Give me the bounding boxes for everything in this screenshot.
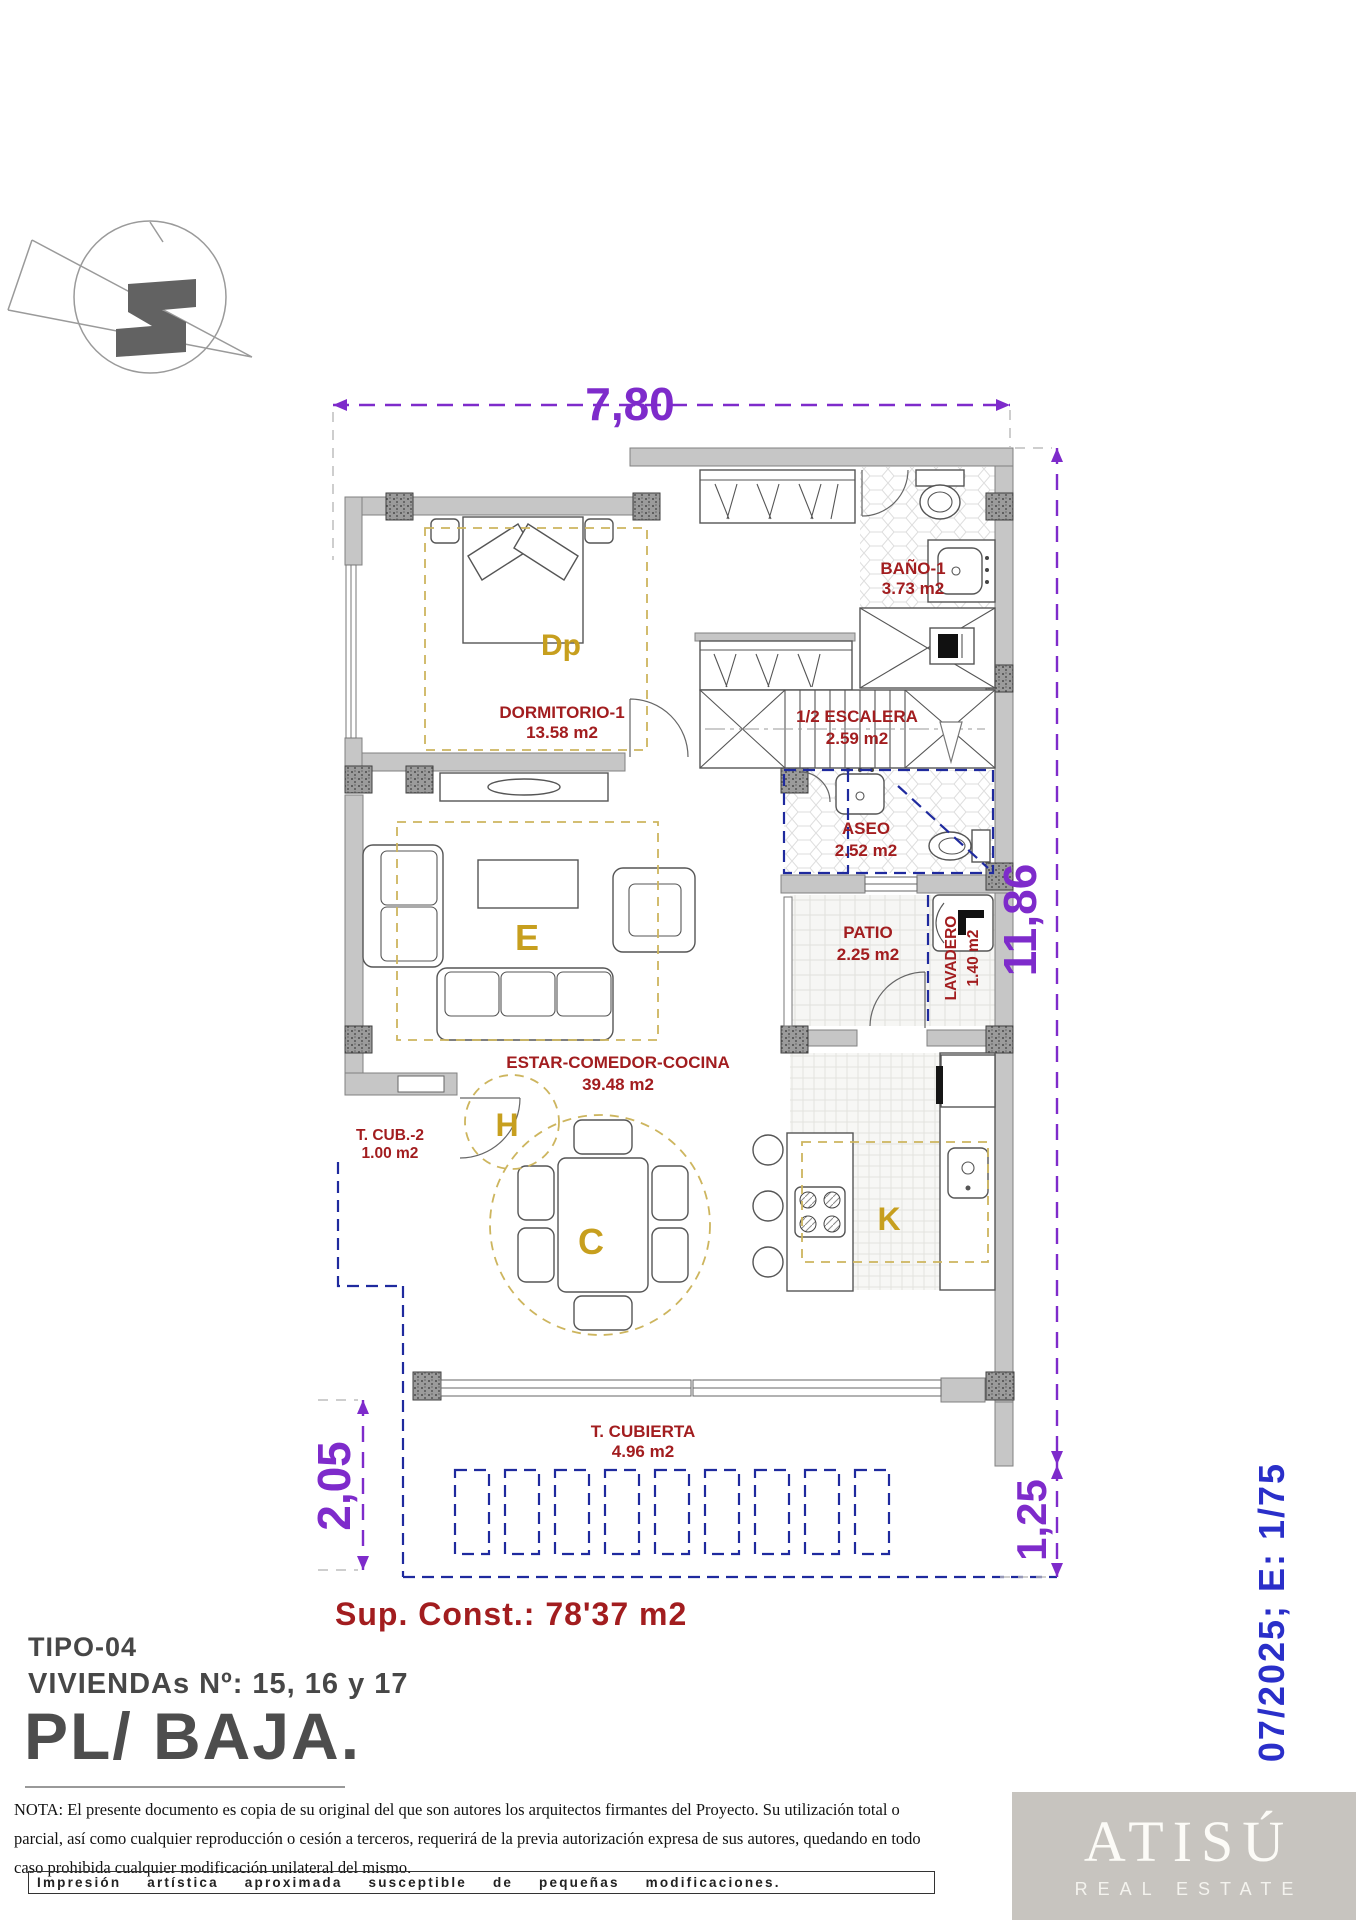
chair-icon <box>574 1120 632 1154</box>
nightstand-icon <box>431 519 459 543</box>
dresser-icon <box>440 773 608 801</box>
dim-right-height: 11,86 <box>994 864 1046 977</box>
room-aseo-area: 2.52 m2 <box>835 841 897 860</box>
nightstand-icon <box>585 519 613 543</box>
zone-letter-living: E <box>515 917 539 958</box>
units-label: VIVIENDAs Nº: 15, 16 y 17 <box>28 1668 409 1701</box>
kitchen-island-icon <box>753 1133 853 1291</box>
aseo-sink-icon <box>836 768 884 814</box>
kitchen-counter-icon <box>936 1053 995 1290</box>
coffee-table-icon <box>478 860 578 908</box>
built-area-total: Sup. Const.: 78'37 m2 <box>335 1596 687 1633</box>
room-banyo1-name: BAÑO-1 <box>880 558 945 578</box>
chair-icon <box>518 1228 554 1282</box>
hob-icon <box>795 1187 845 1237</box>
dim-terrace-left: 2,05 <box>308 1441 360 1531</box>
north-z-glyph <box>116 279 196 357</box>
dim-top-width: 7,80 <box>585 378 675 430</box>
artistic-disclaimer: Impresión artística aproximada susceptib… <box>28 1871 935 1894</box>
room-dormitorio1-name: DORMITORIO-1 <box>499 703 624 722</box>
north-arrow-logo <box>8 221 252 373</box>
stool-icon <box>753 1191 783 1221</box>
stool-icon <box>753 1135 783 1165</box>
fridge-icon <box>941 1055 995 1107</box>
room-tcubierta-name: T. CUBIERTA <box>591 1422 696 1441</box>
wardrobe-icon <box>700 470 855 690</box>
type-label: TIPO-04 <box>28 1632 137 1663</box>
bed-icon <box>431 517 613 643</box>
brand-tagline: REAL ESTATE <box>1075 1879 1304 1900</box>
room-lavadero-name: LAVADERO <box>943 916 960 1001</box>
chair-icon <box>518 1166 554 1220</box>
room-escalera-name: 1/2 ESCALERA <box>796 707 918 726</box>
room-lavadero-area: 1.40 m2 <box>965 930 982 987</box>
room-patio-area: 2.25 m2 <box>837 945 899 964</box>
sofa-icon <box>437 968 613 1040</box>
zone-letter-dining: C <box>578 1221 604 1262</box>
pergola-slats <box>455 1470 889 1554</box>
room-tcub2-name: T. CUB.-2 <box>356 1127 424 1144</box>
fridge-handle <box>936 1066 943 1104</box>
chair-icon <box>652 1228 688 1282</box>
chair-icon <box>574 1296 632 1330</box>
zone-letter-bedroom: Dp <box>541 629 581 662</box>
room-escalera-area: 2.59 m2 <box>826 729 888 748</box>
stool-icon <box>753 1247 783 1277</box>
brand-logo: ATISÚ REAL ESTATE <box>1012 1792 1356 1920</box>
shower-icon <box>860 608 995 688</box>
zone-letter-kitchen: K <box>877 1201 900 1237</box>
room-aseo-name: ASEO <box>842 819 890 838</box>
room-estar-area: 39.48 m2 <box>582 1075 654 1094</box>
toilet-icon <box>916 470 964 519</box>
loveseat-icon <box>363 845 443 967</box>
room-banyo1-area: 3.73 m2 <box>882 579 944 598</box>
chair-icon <box>652 1166 688 1220</box>
washing-machine-icon <box>933 895 993 951</box>
page-title: PL/ BAJA. <box>24 1698 361 1774</box>
brand-name: ATISÚ <box>1084 1813 1293 1871</box>
room-estar-name: ESTAR-COMEDOR-COCINA <box>506 1053 730 1072</box>
room-tcubierta-area: 4.96 m2 <box>612 1442 674 1461</box>
armchair-icon <box>613 868 695 952</box>
title-divider <box>25 1786 345 1788</box>
room-patio-name: PATIO <box>843 923 892 942</box>
zone-letter-hall: H <box>495 1107 518 1143</box>
copyright-note: NOTA: El presente documento es copia de … <box>14 1795 950 1882</box>
room-dormitorio1-area: 13.58 m2 <box>526 723 598 742</box>
aseo-toilet-icon <box>929 830 990 862</box>
floor-plan-sheet: 7,80 11,86 2,05 1,25 BAÑO-1 3.73 m2 DORM… <box>0 0 1356 1920</box>
kitchen-sink-icon <box>948 1148 988 1198</box>
scale-date-note: 07/2025; E: 1/75 <box>1251 1462 1292 1762</box>
room-tcub2-area: 1.00 m2 <box>362 1145 419 1162</box>
dim-pergola-right: 1,25 <box>1008 1479 1055 1561</box>
